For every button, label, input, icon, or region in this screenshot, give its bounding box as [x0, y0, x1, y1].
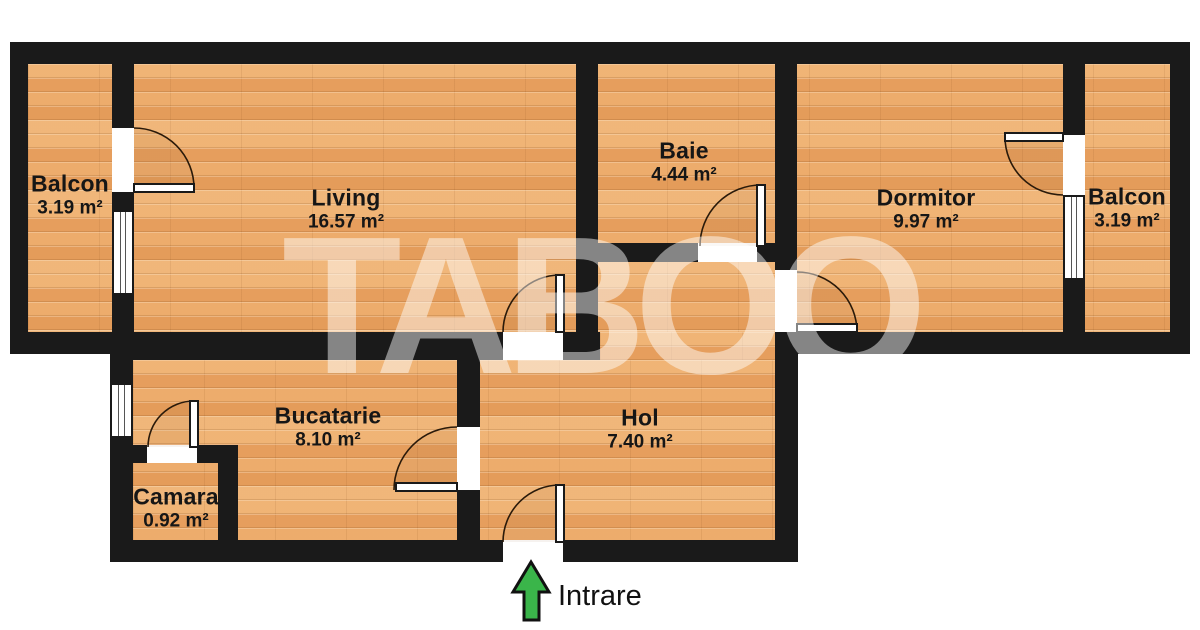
- room-label-camara: Camara 0.92 m²: [133, 484, 219, 533]
- room-area: 9.97 m²: [877, 212, 976, 234]
- entrance-label: Intrare: [558, 580, 642, 613]
- door-swing-balcon-left: [134, 128, 194, 188]
- door-leaf-balcon-left: [134, 184, 194, 192]
- door-symbols-layer: [0, 0, 1200, 630]
- floorplan-canvas: Balcon 3.19 m² Living 16.57 m² Baie 4.44…: [0, 0, 1200, 630]
- door-leaf-living: [556, 275, 564, 332]
- room-label-balcon-left: Balcon 3.19 m²: [31, 171, 109, 220]
- entrance-arrow-icon: [513, 562, 549, 620]
- room-area: 3.19 m²: [1088, 211, 1166, 233]
- room-label-living: Living 16.57 m²: [308, 185, 384, 234]
- door-leaf-balcon-right: [1005, 133, 1063, 141]
- room-label-baie: Baie 4.44 m²: [651, 138, 716, 187]
- room-area: 4.44 m²: [651, 165, 716, 187]
- room-area: 0.92 m²: [133, 511, 219, 533]
- room-name: Bucatarie: [275, 403, 382, 430]
- door-swing-bucatarie: [394, 427, 457, 490]
- room-area: 16.57 m²: [308, 212, 384, 234]
- room-name: Balcon: [31, 171, 109, 198]
- room-name: Balcon: [1088, 184, 1166, 211]
- room-name: Dormitor: [877, 185, 976, 212]
- room-name: Hol: [607, 405, 672, 432]
- room-label-bucatarie: Bucatarie 8.10 m²: [275, 403, 382, 452]
- door-leaf-bucatarie: [396, 483, 457, 491]
- room-label-dormitor: Dormitor 9.97 m²: [877, 185, 976, 234]
- door-leaf-baie: [757, 185, 765, 246]
- room-name: Baie: [651, 138, 716, 165]
- room-label-balcon-right: Balcon 3.19 m²: [1088, 184, 1166, 233]
- room-name: Living: [308, 185, 384, 212]
- door-leaf-dormitor: [797, 324, 857, 332]
- door-swing-baie: [700, 185, 761, 246]
- door-swing-entrance: [503, 485, 560, 542]
- room-name: Camara: [133, 484, 219, 511]
- door-swing-balcon-right: [1005, 137, 1063, 195]
- door-leaf-camara: [190, 401, 198, 447]
- door-swing-living: [503, 275, 560, 332]
- room-area: 8.10 m²: [275, 430, 382, 452]
- room-label-hol: Hol 7.40 m²: [607, 405, 672, 454]
- door-leaf-entrance: [556, 485, 564, 542]
- room-area: 7.40 m²: [607, 432, 672, 454]
- room-area: 3.19 m²: [31, 198, 109, 220]
